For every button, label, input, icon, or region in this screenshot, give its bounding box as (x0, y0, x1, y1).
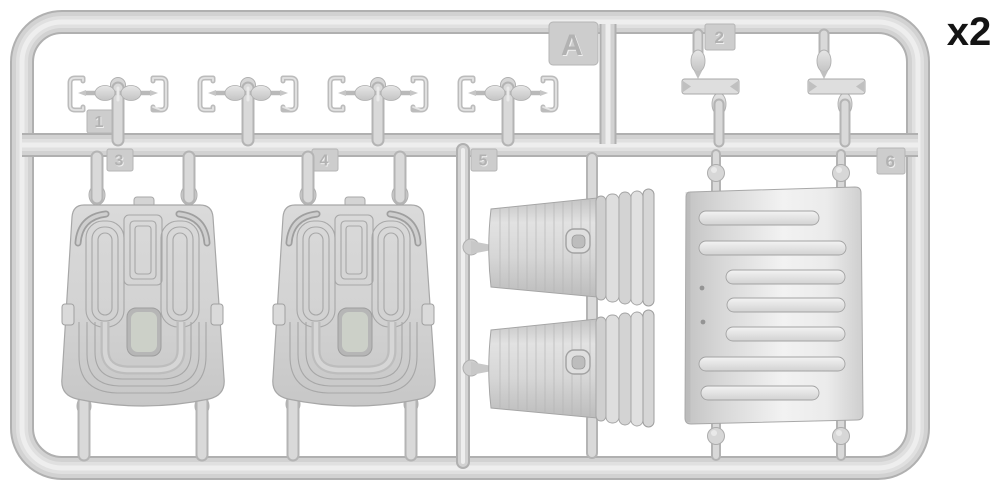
panel-hole (700, 286, 705, 291)
clamp-handle-unit (460, 78, 556, 141)
part-number-5: 5 (479, 153, 488, 170)
sprue-a-drawing: A A 1 1 2 2 3 3 4 4 5 5 6 6 (0, 0, 1000, 488)
sprue-gate (708, 154, 725, 193)
clamp-handle-row (70, 78, 556, 141)
mounting-strip-part (808, 34, 865, 142)
part-number-3: 3 (115, 153, 124, 170)
part-tab-3: 3 3 (107, 149, 133, 171)
cover-panel-part-4 (273, 197, 435, 406)
sprue-illustration: A A 1 1 2 2 3 3 4 4 5 5 6 6 (0, 0, 1000, 488)
clamp-handle-unit (330, 78, 426, 141)
part-tab-6: 6 6 (877, 148, 905, 174)
corrugated-panel-part-6 (685, 154, 863, 456)
sprue-letter: A (561, 29, 583, 62)
bucket-part-upper (463, 158, 654, 306)
clamp-handle-unit (70, 78, 166, 141)
part-tab-1: 1 1 (87, 110, 113, 133)
panel-hole (701, 320, 706, 325)
part-number-6: 6 (886, 152, 895, 171)
clamp-handle-unit (200, 78, 296, 141)
part-tab-5: 5 5 (471, 149, 497, 171)
part-number-4: 4 (320, 153, 329, 170)
quantity-label: x2 (947, 10, 992, 54)
part-number-1: 1 (95, 114, 104, 131)
part-tab-2: 2 2 (705, 24, 735, 50)
sprue-gate (833, 417, 850, 456)
sprue-letter-tab: A A (549, 22, 598, 65)
part-tab-4: 4 4 (312, 149, 338, 171)
part-number-2: 2 (715, 28, 724, 47)
cover-panel-part-3 (62, 197, 224, 406)
